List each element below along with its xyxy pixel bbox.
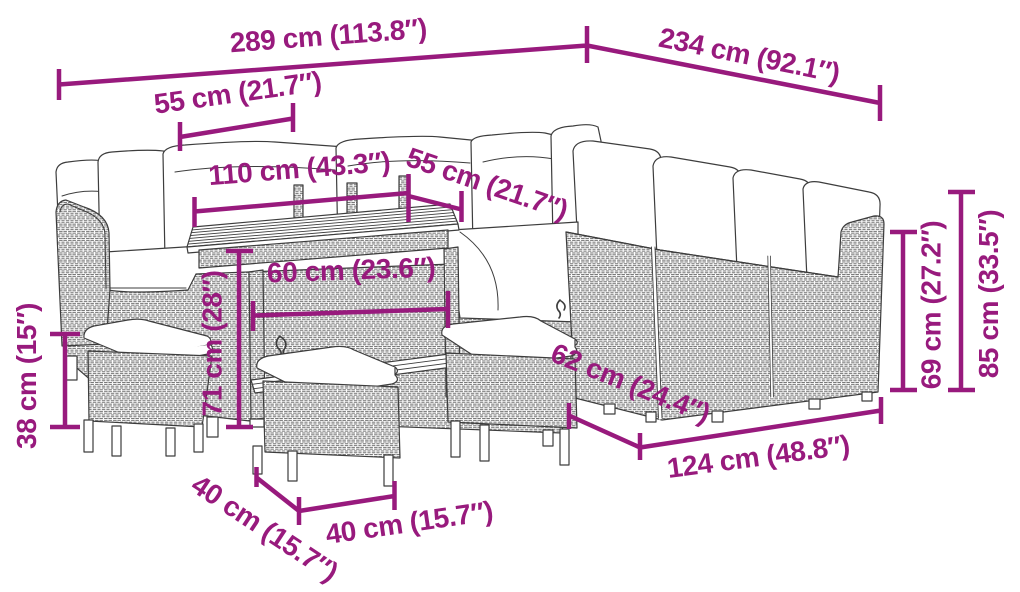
svg-text:38 cm (15″): 38 cm (15″) [11,303,42,449]
svg-text:85 cm (33.5″): 85 cm (33.5″) [973,210,1004,379]
svg-text:60 cm (23.6″): 60 cm (23.6″) [266,252,436,289]
svg-text:71 cm (28″): 71 cm (28″) [197,271,228,417]
svg-text:69 cm (27.2″): 69 cm (27.2″) [916,221,947,390]
